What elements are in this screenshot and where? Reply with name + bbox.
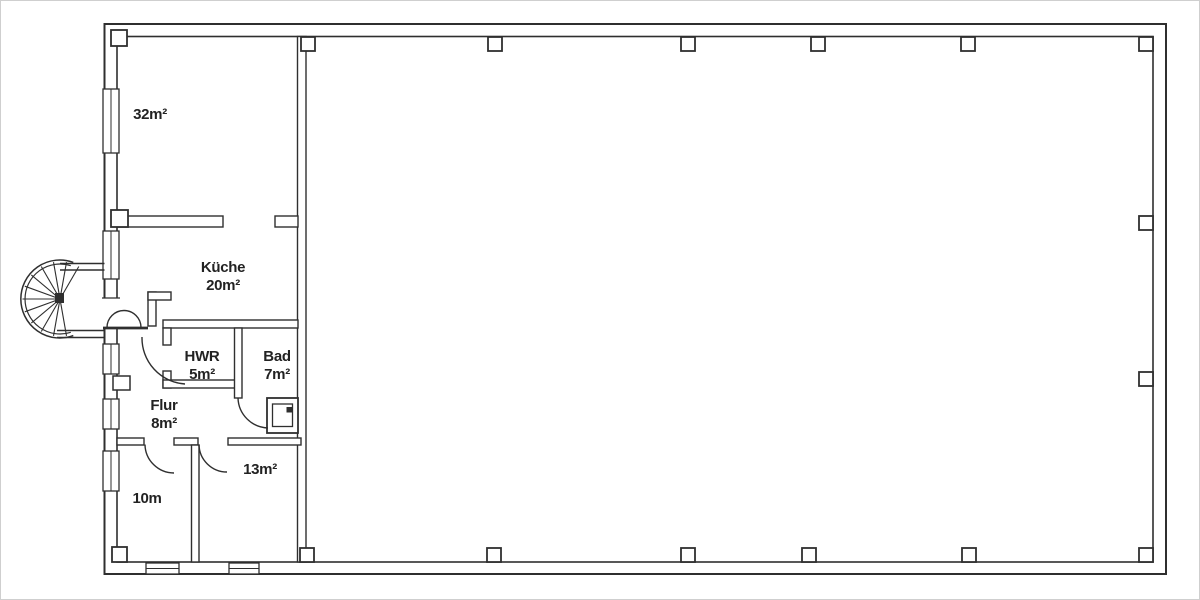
window-icon	[103, 399, 119, 429]
door-arc	[238, 398, 268, 428]
pillar	[112, 547, 127, 562]
pillar	[111, 30, 127, 46]
pillar	[681, 37, 695, 51]
pillar	[488, 37, 502, 51]
interior-walls	[111, 37, 306, 563]
window-icon	[103, 89, 119, 153]
entrance-opening	[102, 298, 120, 329]
doors	[103, 311, 268, 474]
shower-icon	[267, 398, 298, 433]
pillar	[487, 548, 501, 562]
floor-plan-canvas	[1, 1, 1200, 600]
pillar	[1139, 216, 1153, 230]
pillar	[300, 548, 314, 562]
window-icon	[103, 344, 119, 374]
radiator-box	[113, 376, 130, 390]
pillar	[1139, 37, 1153, 51]
door-arc	[199, 445, 227, 473]
pillar	[802, 548, 816, 562]
pillar	[962, 548, 976, 562]
pillar	[301, 37, 315, 51]
pillar	[961, 37, 975, 51]
pillars	[111, 30, 1153, 562]
window-icon	[229, 563, 259, 574]
pillar	[811, 37, 825, 51]
exterior-wall	[105, 24, 1167, 574]
spiral-staircase-icon	[21, 260, 105, 338]
floor-plan-page: 32m² Küche20m² HWR5m² Bad7m² Flur8m² 10m…	[0, 0, 1200, 600]
window-icon	[103, 231, 119, 279]
window-icon	[103, 451, 119, 491]
pillar	[1139, 548, 1153, 562]
door-arc	[145, 445, 174, 474]
pillar	[681, 548, 695, 562]
window-icon	[146, 563, 179, 574]
pillar	[1139, 372, 1153, 386]
